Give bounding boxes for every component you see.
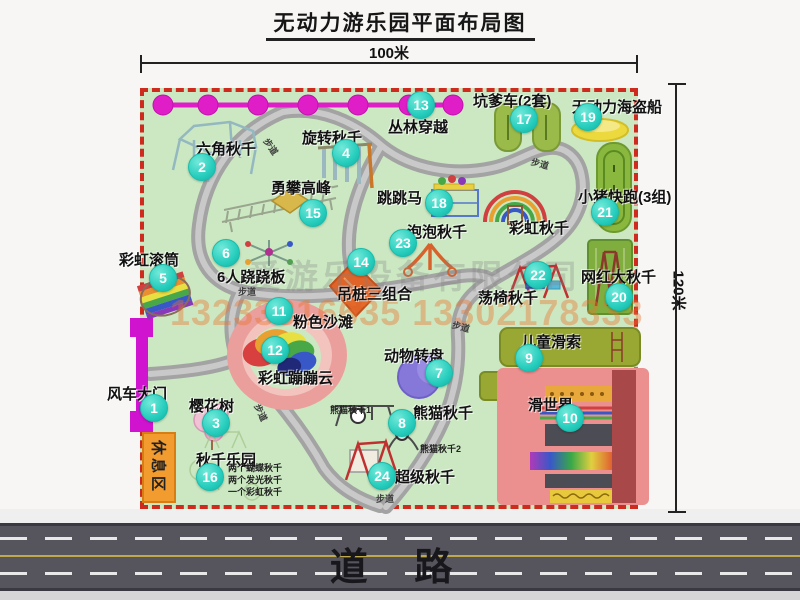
park-plan-screenshot: 无动力游乐园平面布局图 100米 120米: [0, 0, 800, 600]
road-label: 道 路: [0, 536, 800, 591]
dimension-top-label: 100米: [140, 42, 638, 63]
watermark-phone: 13233816635 13302178333: [170, 292, 643, 334]
watermark-company: 爱游乐设备有限公司: [248, 250, 581, 298]
curb-strip-bottom: [0, 591, 800, 600]
page-title: 无动力游乐园平面布局图: [0, 7, 800, 37]
rest-area-box: 休息区: [142, 432, 176, 503]
dimension-right-label: 120米: [669, 270, 690, 310]
dimension-top-line: [140, 62, 638, 64]
rest-area-label: 休息区: [149, 440, 170, 494]
page-title-text: 无动力游乐园平面布局图: [266, 12, 535, 41]
road: 道 路: [0, 523, 800, 591]
dimension-right-line: [675, 83, 677, 513]
